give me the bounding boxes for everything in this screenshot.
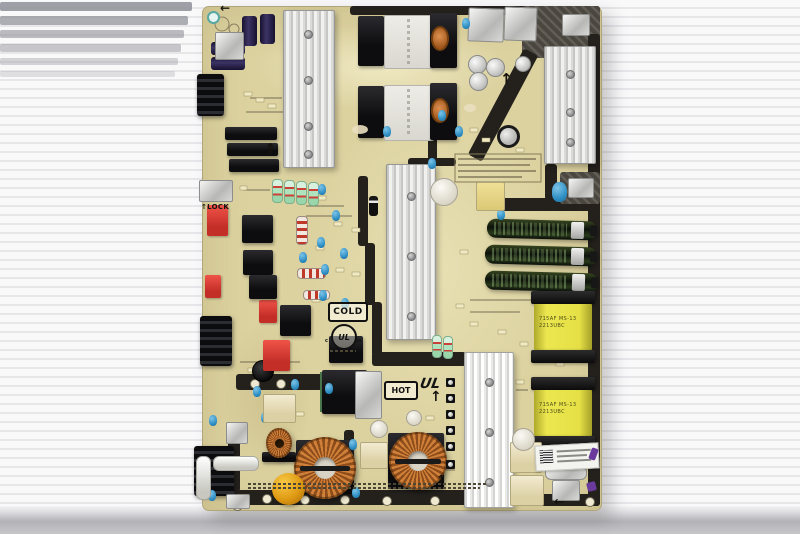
capacitor-top: [497, 125, 520, 148]
solder-pin: [446, 410, 455, 419]
yellow-box-capacitor: [476, 182, 505, 211]
solder-pin: [446, 378, 455, 387]
safety-fine-print: [248, 483, 488, 485]
metal-bracket: [199, 180, 233, 202]
backdrop-stripe: [0, 71, 175, 77]
thermistor-disc: [272, 473, 305, 505]
screw: [304, 76, 313, 85]
white-round-capacitor: [406, 410, 422, 426]
transformer-copper-winding: [431, 26, 449, 51]
blue-capacitor: [317, 237, 325, 248]
relay-block: [280, 305, 311, 336]
blue-capacitor: [428, 158, 436, 169]
screw: [566, 108, 575, 117]
transformer-core-cap: [531, 377, 595, 390]
diode: [369, 196, 378, 216]
striped-resistor: [296, 216, 308, 245]
cold-label: COLD: [328, 302, 368, 322]
screw: [304, 122, 313, 131]
lock-label: ↑LOCK: [201, 203, 229, 211]
ul-mark-c: c: [325, 338, 328, 344]
sticker-text-line: [557, 459, 591, 463]
box-capacitor: [355, 371, 382, 419]
up-arrow-icon: ↑: [430, 390, 442, 404]
ul-certification-mark: UL: [331, 324, 357, 350]
sticker-text-line: [557, 449, 591, 453]
transformer-core-cap: [531, 350, 595, 363]
metal-clip: [568, 178, 594, 198]
sticker-text-line: [557, 454, 587, 458]
electrolytic-capacitor: [485, 271, 598, 293]
resistor: [308, 182, 319, 206]
screw: [566, 138, 575, 147]
solder-pad: [340, 495, 350, 505]
metal-clip: [226, 422, 248, 444]
transformer-body: [384, 15, 434, 69]
mounting-hole: [585, 497, 595, 507]
capacitor-top: [515, 56, 531, 72]
blue-capacitor: [332, 210, 340, 221]
screw: [566, 70, 575, 79]
backdrop-stripe: [0, 44, 181, 52]
solder-pin: [446, 426, 455, 435]
transformer-marking-line1: 715AF MS-13: [539, 316, 576, 322]
backdrop-stripe: [0, 58, 178, 65]
solder-pad: [382, 496, 392, 506]
white-round-capacitor: [430, 178, 458, 206]
red-film-capacitor: [259, 300, 277, 323]
edge-connector: [197, 74, 224, 116]
resistor: [284, 180, 295, 204]
box-capacitor: [360, 442, 388, 469]
glue-blob: [464, 104, 476, 112]
transformer-marking-line2: 2213UBC: [539, 409, 565, 415]
blue-capacitor: [349, 439, 357, 450]
blue-capacitor: [340, 248, 348, 259]
blue-capacitor: [291, 379, 299, 390]
relay-block: [225, 127, 277, 140]
electrolytic-capacitor: [260, 14, 275, 44]
up-arrow-icon: ↑: [264, 142, 277, 157]
blue-capacitor: [318, 184, 326, 195]
blue-capacitor: [455, 126, 463, 137]
resistor: [296, 181, 307, 205]
small-toroid-inductor: [266, 428, 292, 458]
metal-clip: [226, 494, 250, 509]
backdrop-stripe: [0, 16, 188, 25]
white-round-capacitor: [370, 420, 388, 438]
resistor: [432, 335, 442, 358]
transformer-marking-line1: 715AF MS-13: [539, 402, 576, 408]
glue-blob: [352, 125, 368, 134]
left-arrow-icon: ←: [554, 496, 565, 509]
solder-pad: [276, 379, 286, 389]
electrolytic-capacitor: [242, 16, 257, 46]
box-capacitor: [510, 475, 544, 506]
blue-capacitor: [383, 126, 391, 137]
box-capacitor: [263, 394, 296, 423]
blue-capacitor: [325, 383, 333, 394]
solder-pin: [446, 442, 455, 451]
screw: [304, 30, 313, 39]
backdrop-stripe: [0, 30, 184, 38]
white-capacitor: [196, 456, 211, 500]
yellow-transformer-body: 715AF MS-13 2213UBC: [534, 390, 592, 436]
backdrop-stripe: [0, 2, 192, 11]
transformer-marking-line2: 2213UBC: [539, 323, 565, 329]
solder-pad: [430, 496, 440, 506]
photo-scene: 715AF MS-13 2213UBC 715AF MS-13 2213UBC: [0, 0, 800, 534]
red-film-capacitor: [263, 340, 290, 371]
edge-connector: [200, 316, 232, 366]
blue-capacitor: [438, 110, 446, 121]
left-arrow-icon: ←: [220, 2, 230, 14]
mounting-hole: [207, 11, 220, 24]
resistor: [272, 179, 283, 203]
screw: [485, 428, 494, 437]
relay-block: [243, 250, 273, 275]
blue-capacitor: [552, 182, 567, 202]
blue-capacitor: [253, 386, 261, 397]
solder-pin: [446, 394, 455, 403]
ul-file-number: [330, 350, 356, 352]
silkscreen-trace: [365, 243, 375, 305]
silkscreen-trace: [358, 176, 368, 246]
screw: [407, 252, 416, 261]
transformer-core-cap: [531, 291, 595, 304]
resistor: [443, 336, 453, 359]
fuse: [213, 456, 259, 471]
silkscreen-trace: [372, 302, 382, 356]
blue-capacitor: [299, 252, 307, 263]
barcode: [540, 450, 554, 464]
transformer-bobbin-end: [358, 16, 384, 66]
relay-block: [229, 159, 279, 172]
electrolytic-capacitor: [487, 219, 597, 241]
solder-pin: [446, 460, 455, 469]
hot-label: HOT: [384, 381, 418, 400]
relay-block: [249, 275, 277, 299]
transformer-body: [384, 85, 434, 141]
electrolytic-capacitor: [485, 245, 597, 267]
solder-pad: [262, 494, 272, 504]
screw: [485, 378, 494, 387]
blue-capacitor: [209, 415, 217, 426]
blue-capacitor: [321, 264, 329, 275]
blue-capacitor: [319, 290, 327, 301]
safety-fine-print: [248, 487, 480, 489]
white-round-capacitor: [512, 428, 535, 451]
metal-clip: [562, 14, 590, 36]
up-arrow-icon: ↑: [436, 474, 447, 487]
up-arrow-icon: ↑: [500, 72, 513, 87]
red-film-capacitor: [205, 275, 221, 298]
relay-block: [242, 215, 273, 243]
blue-capacitor: [462, 18, 470, 29]
film-capacitor: [503, 6, 537, 41]
film-capacitor: [467, 7, 504, 42]
screw: [407, 312, 416, 321]
yellow-transformer-body: 715AF MS-13 2213UBC: [534, 304, 592, 350]
capacitor-top: [469, 72, 488, 91]
screw: [304, 150, 313, 159]
screw: [407, 192, 416, 201]
ul-mark-us: us: [355, 338, 362, 344]
metal-bracket: [215, 32, 244, 60]
